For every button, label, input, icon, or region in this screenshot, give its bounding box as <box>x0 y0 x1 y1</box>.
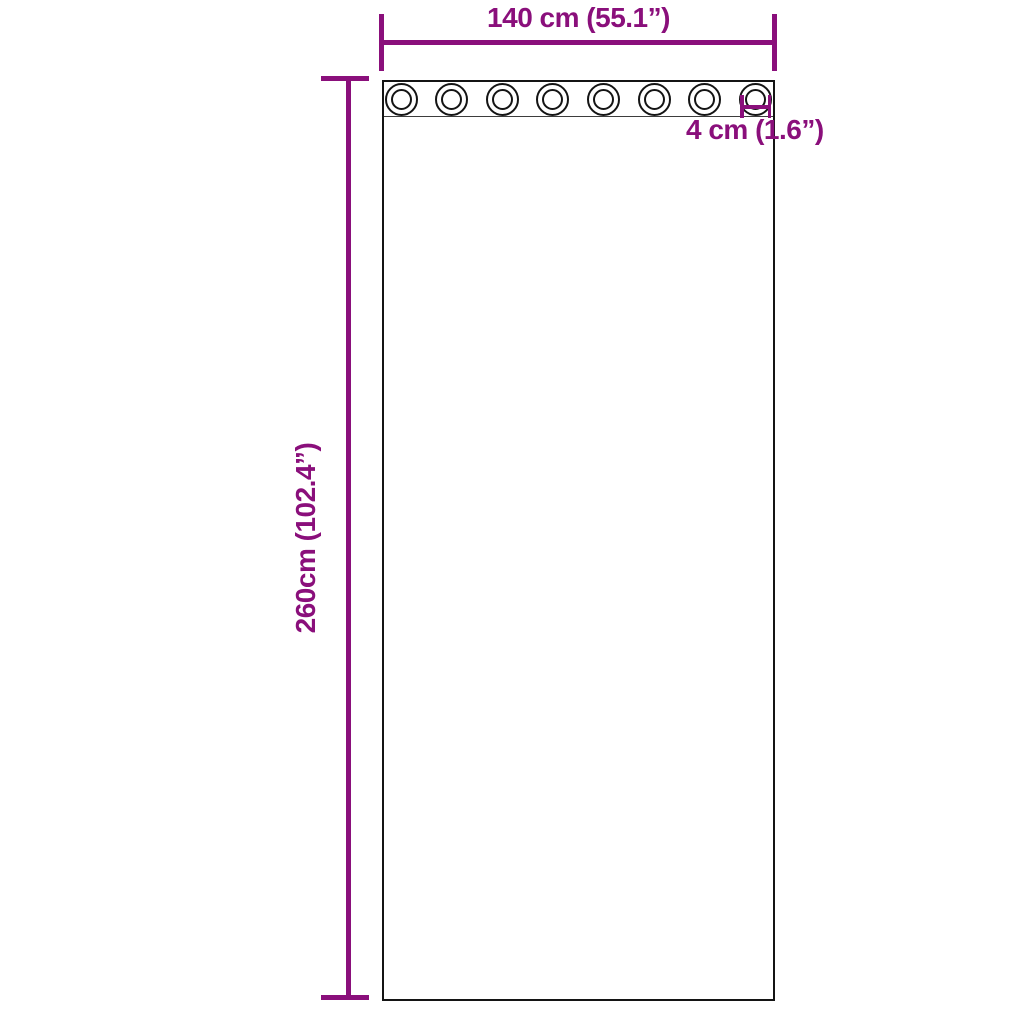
grommet-dimension-line <box>740 105 771 109</box>
grommet-inner-ring <box>441 89 462 110</box>
grommet-inner-ring <box>694 89 715 110</box>
width-dimension-label: 140 cm (55.1”) <box>382 2 775 34</box>
height-dimension-label: 260cm (102.4”) <box>290 443 322 634</box>
grommet-eyelet <box>385 83 418 116</box>
curtain-dimension-diagram: 140 cm (55.1”) 260cm (102.4”) 4 cm (1.6”… <box>0 0 1024 1024</box>
grommet-eyelet <box>486 83 519 116</box>
grommet-dimension-label: 4 cm (1.6”) <box>686 114 824 146</box>
grommet-inner-ring <box>542 89 563 110</box>
grommet-eyelet <box>638 83 671 116</box>
height-dimension-top-tick <box>321 76 369 81</box>
height-dimension-line <box>346 78 351 998</box>
height-dimension-bottom-tick <box>321 995 369 1000</box>
grommet-eyelet <box>536 83 569 116</box>
curtain-panel <box>382 80 775 1001</box>
width-dimension-line <box>379 40 777 45</box>
grommet-eyelet <box>587 83 620 116</box>
grommet-inner-ring <box>593 89 614 110</box>
grommet-inner-ring <box>644 89 665 110</box>
grommet-eyelet <box>435 83 468 116</box>
grommet-inner-ring <box>492 89 513 110</box>
grommet-eyelet <box>688 83 721 116</box>
grommet-inner-ring <box>391 89 412 110</box>
